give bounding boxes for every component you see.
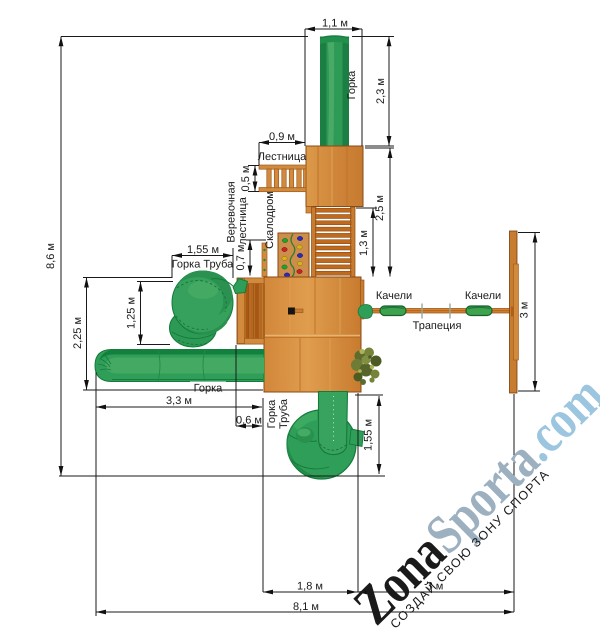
svg-text:1,25 м: 1,25 м: [126, 297, 138, 329]
svg-text:Лестница: Лестница: [258, 151, 307, 163]
svg-text:Качели: Качели: [376, 290, 412, 302]
svg-text:лестница: лестница: [237, 196, 249, 245]
svg-text:1,3 м: 1,3 м: [358, 230, 370, 256]
svg-text:Трапеция: Трапеция: [413, 320, 462, 332]
svg-text:Качели: Качели: [465, 290, 501, 302]
svg-text:2,3 м: 2,3 м: [375, 78, 387, 104]
svg-text:0,6 м: 0,6 м: [236, 415, 262, 427]
svg-text:0,7 м: 0,7 м: [235, 245, 247, 271]
svg-text:Горка: Горка: [266, 399, 278, 429]
svg-text:0,9 м: 0,9 м: [269, 131, 295, 143]
svg-text:3,3 м: 3,3 м: [166, 395, 192, 407]
svg-text:1,8 м: 1,8 м: [297, 581, 323, 593]
svg-text:3 м: 3 м: [519, 302, 531, 319]
svg-text:1,55 м: 1,55 м: [363, 419, 375, 451]
svg-text:Горка: Горка: [194, 383, 224, 395]
svg-text:2,25 м: 2,25 м: [72, 317, 84, 349]
svg-text:Веревочная: Веревочная: [226, 181, 238, 242]
svg-text:1,55 м: 1,55 м: [187, 244, 219, 256]
svg-text:Горка: Горка: [346, 70, 358, 100]
svg-text:8,1 м: 8,1 м: [293, 601, 319, 613]
svg-text:Труба: Труба: [278, 398, 290, 429]
svg-text:1,1 м: 1,1 м: [322, 18, 348, 30]
svg-text:Горка Труба: Горка Труба: [172, 259, 234, 271]
svg-text:8,6 м: 8,6 м: [45, 243, 57, 269]
svg-text:0,5 м: 0,5 м: [240, 166, 252, 192]
